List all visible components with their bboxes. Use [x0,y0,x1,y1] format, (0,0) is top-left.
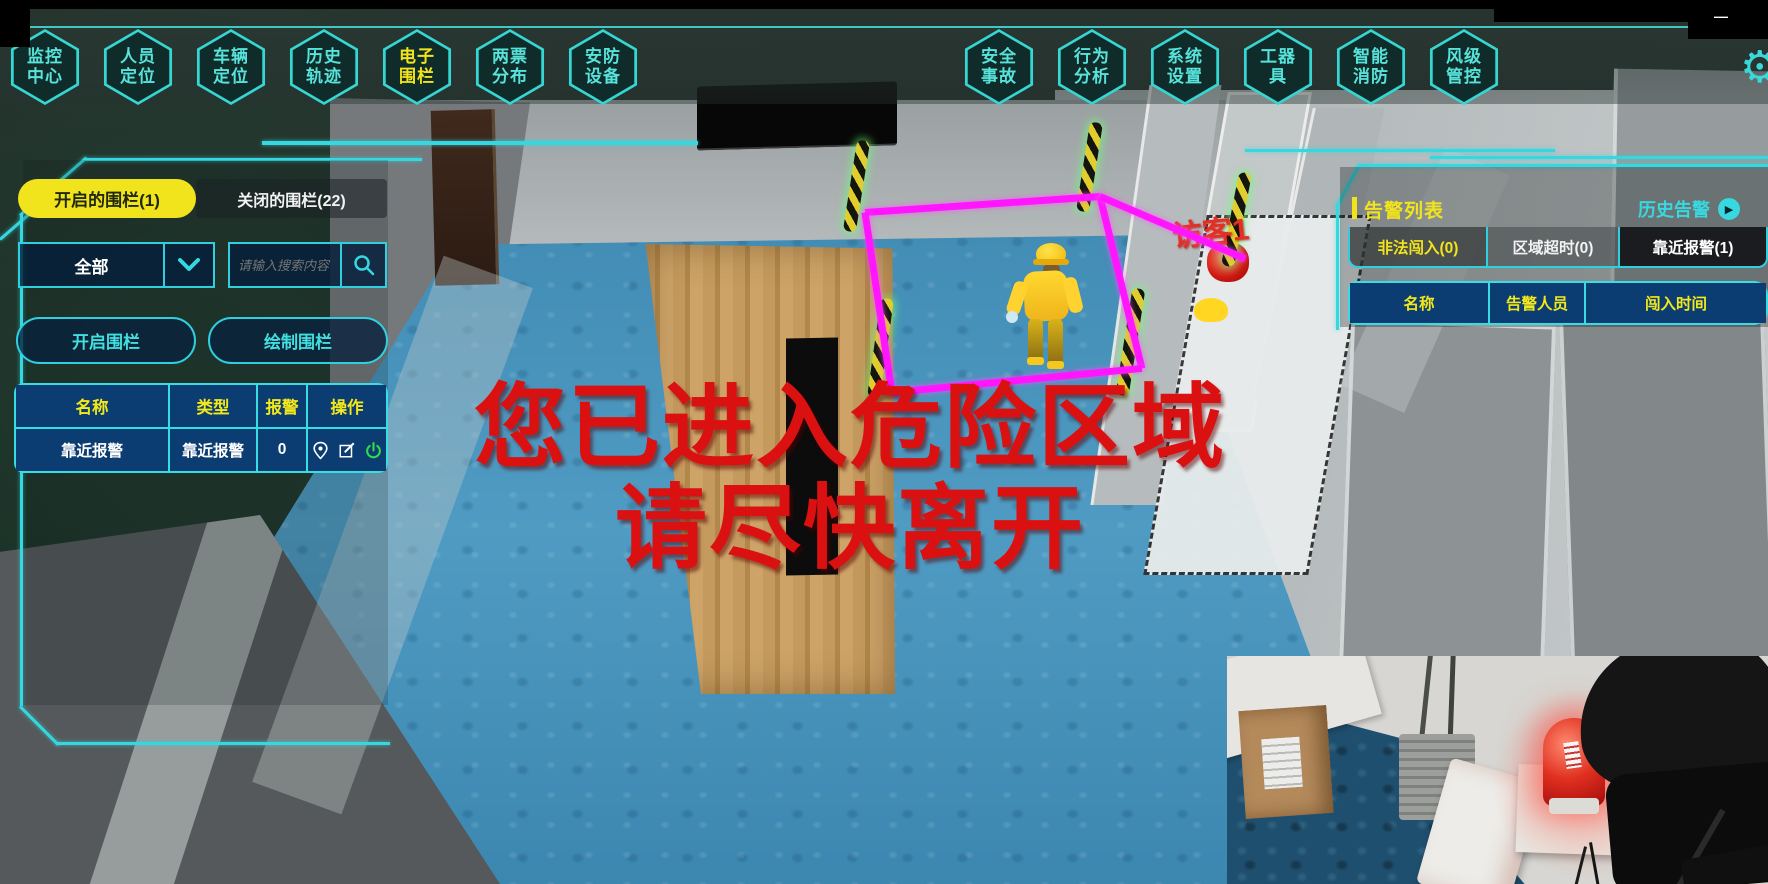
nav-item-security-device[interactable]: 安防设备 [566,29,640,105]
nav-item-behavior-analysis[interactable]: 行为分析 [1055,29,1129,105]
fence-filter-select[interactable]: 全部 [18,242,215,288]
camera-feed-inset [1227,656,1768,884]
fence-filter-value: 全部 [20,253,163,278]
history-alarm-link[interactable]: 历史告警 ▶ [1638,196,1740,222]
alarm-table-header-person: 告警人员 [1490,283,1584,323]
fence-search-input[interactable] [230,244,340,286]
fence-table: 名称 类型 报警 操作 靠近报警 靠近报警 0 [14,383,388,473]
alarm-list-title: 告警列表 [1364,196,1444,223]
draw-fence-button[interactable]: 绘制围栏 [208,317,388,364]
alarm-tab-area-timeout[interactable]: 区域超时(0) [1486,227,1618,266]
nav-item-electronic-fence[interactable]: 电子围栏 [380,29,454,105]
fence-tab-closed[interactable]: 关闭的围栏(22) [196,179,387,218]
worker-right-leg [1048,319,1063,365]
danger-warning-line1: 您已进入危险区域 [350,378,1350,479]
nav-item-two-ticket-distribution[interactable]: 两票分布 [473,29,547,105]
alarm-panel-accent-line-2 [1430,156,1768,159]
scene-yellow-helmet-3d [1194,298,1228,322]
alarm-tabs: 非法闯入(0) 区域超时(0) 靠近报警(1) [1348,227,1768,268]
play-icon[interactable]: ▶ [1718,198,1740,220]
danger-warning-text: 您已进入危险区域 请尽快离开 [350,378,1350,580]
minimize-icon[interactable]: — [1706,8,1736,24]
top-nav-bar: 监控中心 人员定位 车辆定位 历史轨迹 电子围栏 两票分布 安防设备 安全事故 … [0,26,1768,104]
fence-table-header-name: 名称 [16,385,168,427]
nav-item-smart-fire[interactable]: 智能消防 [1334,29,1408,105]
alarm-table-header-name: 名称 [1350,283,1488,323]
scene-gray-slab-2 [1558,292,1768,684]
danger-warning-line2: 请尽快离开 [350,479,1350,580]
fence-search-box [228,242,387,288]
nav-item-history-track[interactable]: 历史轨迹 [287,29,361,105]
nav-item-safety-accident[interactable]: 安全事故 [962,29,1036,105]
alarm-tab-illegal-intrusion[interactable]: 非法闯入(0) [1350,227,1486,266]
worker-avatar [1000,243,1090,368]
worker-left-leg [1028,319,1043,361]
left-panel-accent-line [262,141,698,145]
worker-right-boot [1047,361,1064,369]
alarm-panel-accent-line-1 [1245,149,1555,152]
gear-icon[interactable]: ⚙ [1740,42,1768,93]
fence-table-header-alarm: 报警 [258,385,306,427]
nav-item-tools[interactable]: 工器具 [1241,29,1315,105]
letterbox-top-left-block [0,9,30,47]
fence-row-name: 靠近报警 [16,429,168,471]
open-fence-button[interactable]: 开启围栏 [16,317,196,364]
fence-row-type: 靠近报警 [170,429,256,471]
alarm-beacon-base [1549,798,1599,814]
nav-item-system-settings[interactable]: 系统设置 [1148,29,1222,105]
nav-item-personnel-location[interactable]: 人员定位 [101,29,175,105]
alarm-panel-frame-left [1336,205,1339,330]
alarm-list-title-bar [1352,197,1357,219]
search-icon[interactable] [342,253,385,277]
worker-torso [1023,270,1070,322]
fence-table-header-type: 类型 [170,385,256,427]
app-window: 访客1 监控中心 人员定位 车辆定位 历史轨迹 电子围栏 两票分布 安防设备 安… [0,0,1768,884]
alarm-tab-proximity[interactable]: 靠近报警(1) [1618,227,1766,266]
fence-row-alarm: 0 [258,429,306,471]
location-icon[interactable] [311,441,330,460]
alarm-table-header-time: 闯入时间 [1586,283,1766,323]
worker-left-hand [1006,311,1018,323]
letterbox-top-strip [0,0,1768,9]
nav-item-vehicle-location[interactable]: 车辆定位 [194,29,268,105]
left-panel-frame-bottom [56,742,390,745]
alarm-table: 名称 告警人员 闯入时间 [1348,281,1768,325]
fence-tab-open[interactable]: 开启的围栏(1) [18,179,196,218]
nav-item-wind-control[interactable]: 风级管控 [1427,29,1501,105]
worker-left-boot [1027,357,1044,365]
chevron-down-icon[interactable] [165,258,213,272]
camera-box-label [1261,737,1302,790]
